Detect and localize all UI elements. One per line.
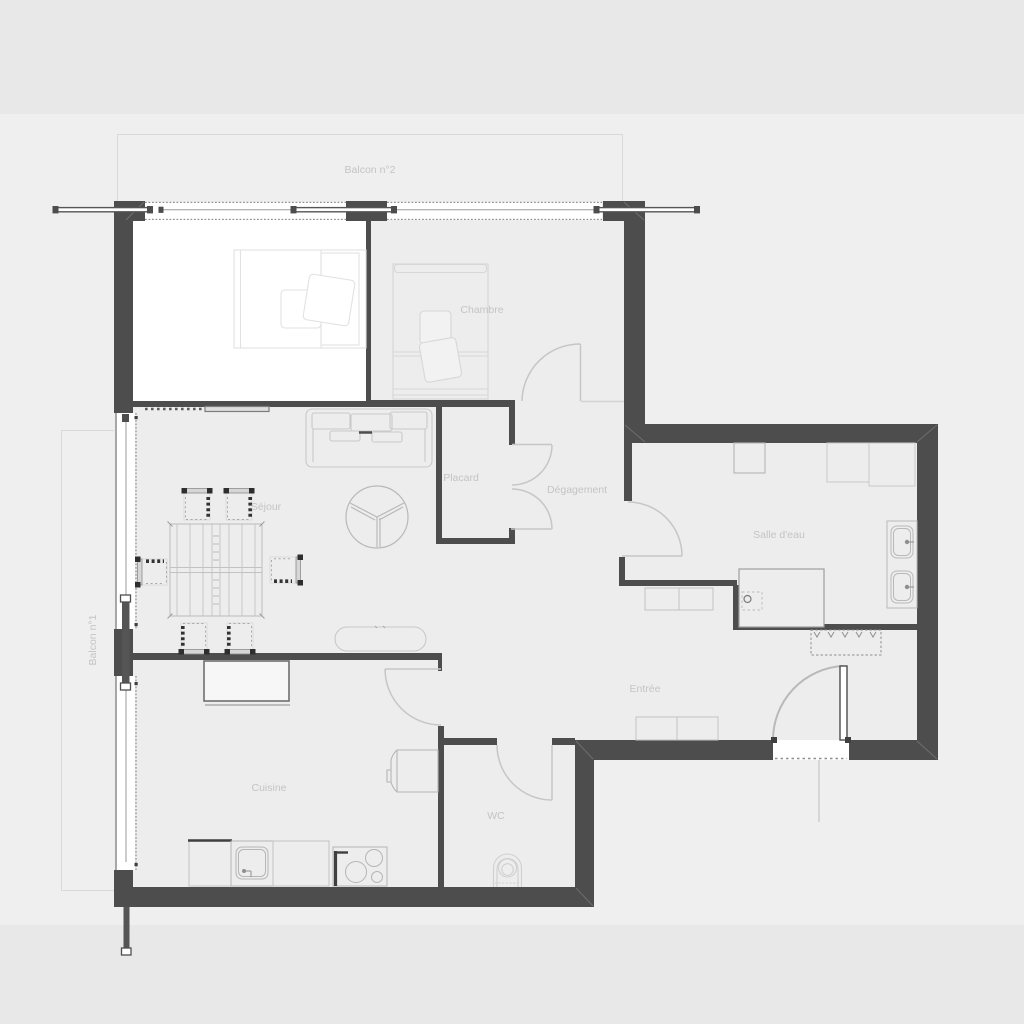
svg-text:Chambre: Chambre: [460, 304, 503, 316]
svg-text:Balcon n°2: Balcon n°2: [345, 164, 396, 176]
svg-text:Dégagement: Dégagement: [547, 484, 607, 496]
svg-text:Entrée: Entrée: [630, 683, 661, 695]
svg-text:Cuisine: Cuisine: [251, 782, 286, 794]
svg-text:Balcon n°1: Balcon n°1: [87, 614, 99, 665]
svg-text:Placard: Placard: [443, 472, 479, 484]
svg-text:Salle d'eau: Salle d'eau: [753, 529, 805, 541]
svg-text:WC: WC: [487, 810, 505, 822]
svg-text:Séjour: Séjour: [251, 501, 282, 513]
